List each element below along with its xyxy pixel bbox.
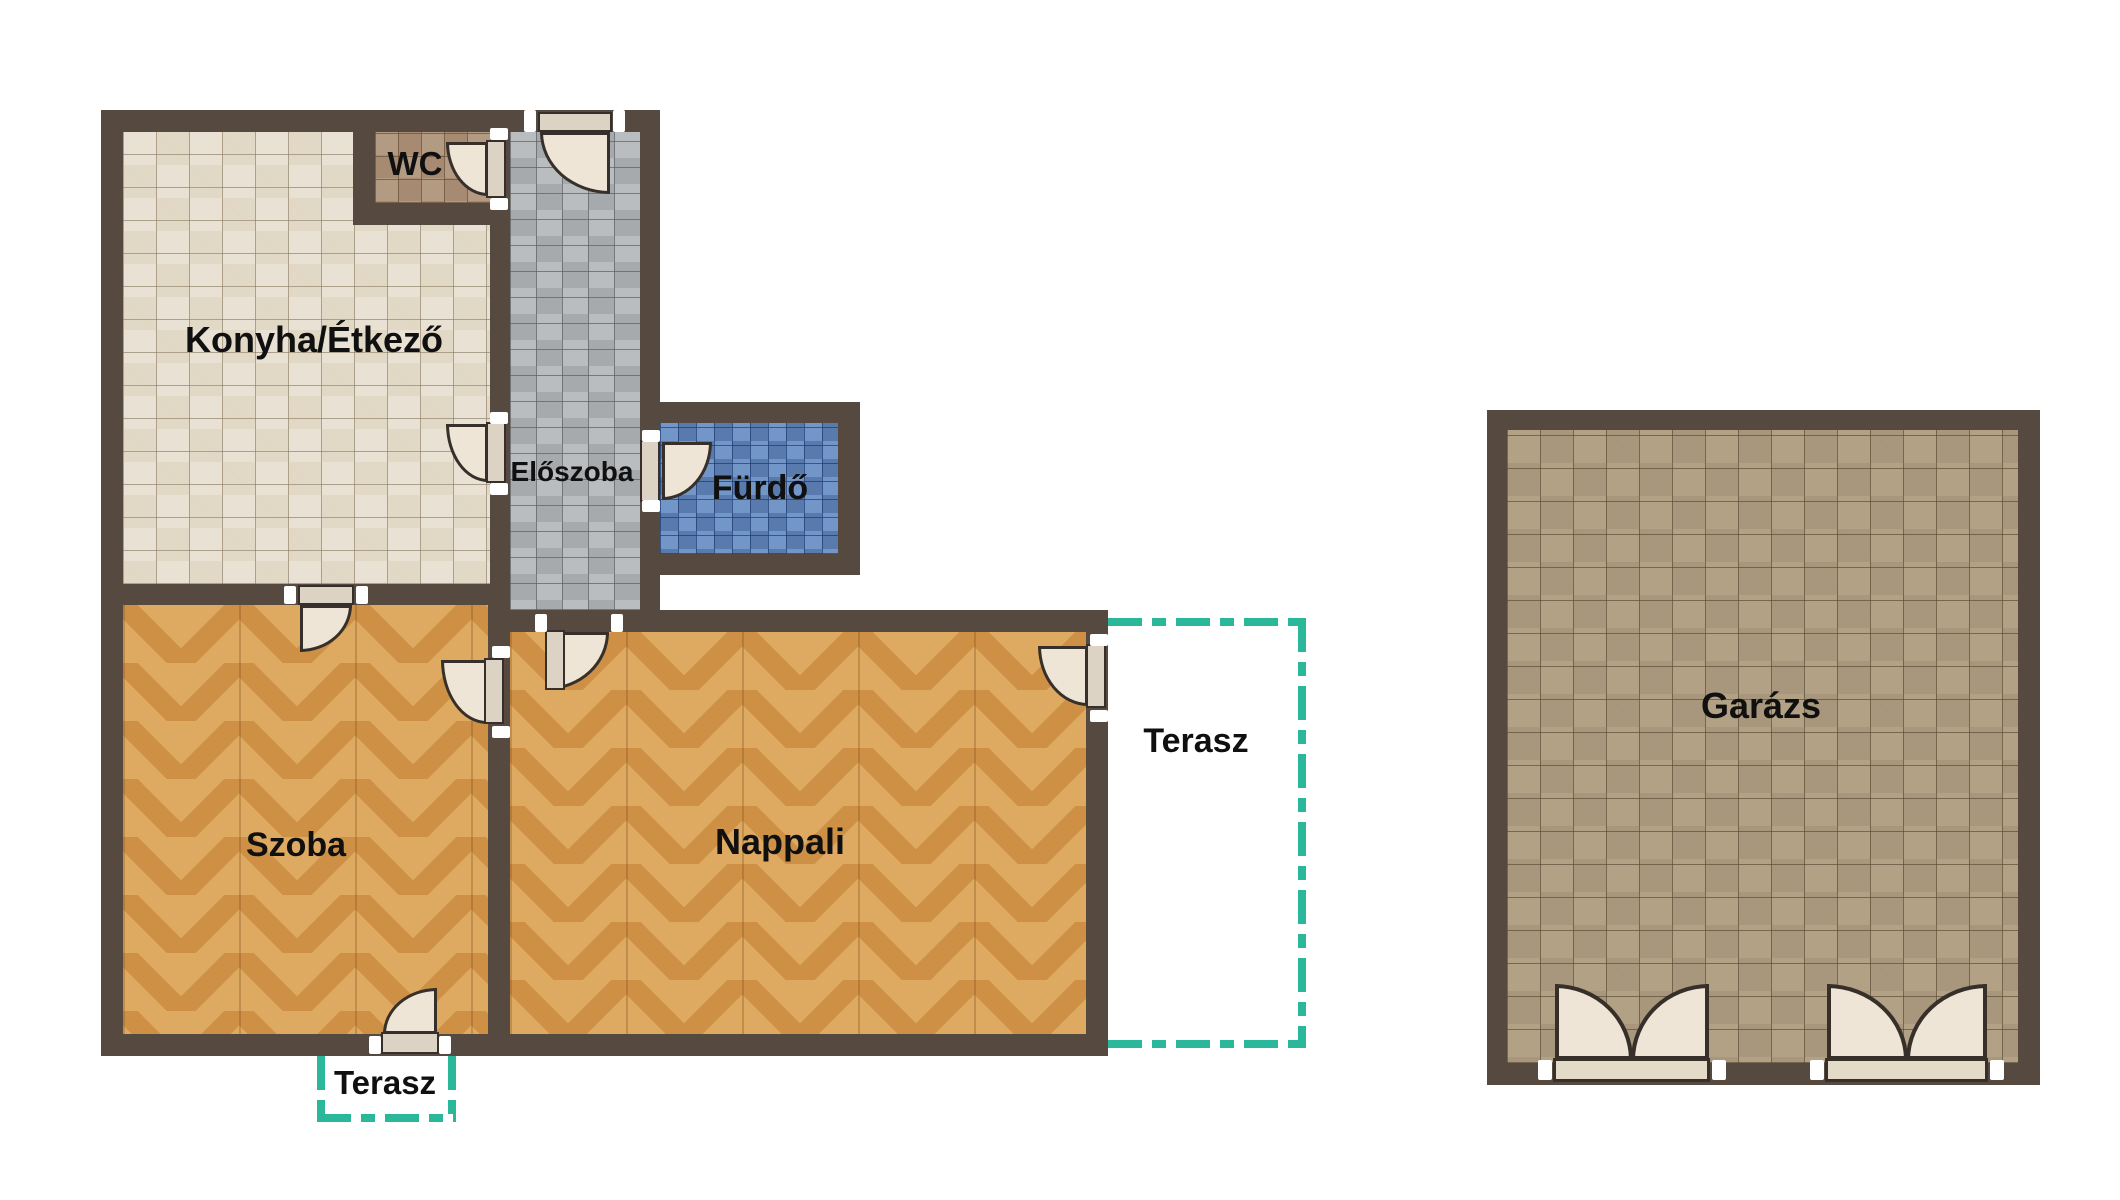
jamb-bracket <box>490 412 508 424</box>
jamb-bracket <box>284 586 296 604</box>
wc-door-leaf-icon <box>486 140 506 198</box>
jamb-bracket <box>535 614 547 632</box>
jamb-bracket <box>642 500 660 512</box>
wall-wc-bottom <box>353 203 510 225</box>
room-label-terasz-bottom: Terasz <box>285 1066 485 1099</box>
entrance-door-leaf-icon <box>538 112 612 132</box>
wall-left <box>101 110 123 1056</box>
jamb-bracket <box>356 586 368 604</box>
floor-plan-canvas: Konyha/Étkező WC Előszoba Fürdő Szoba Na… <box>0 0 2120 1200</box>
jamb-bracket <box>1810 1060 1824 1080</box>
room-label-terasz-right: Terasz <box>1096 724 1296 758</box>
jamb-bracket <box>1712 1060 1726 1080</box>
jamb-bracket <box>524 110 536 132</box>
floor-garazs <box>1507 430 2018 1063</box>
terrace-right-outline-bottom <box>1108 1040 1306 1048</box>
jamb-bracket <box>492 646 510 658</box>
jamb-bracket <box>1090 634 1108 646</box>
jamb-bracket <box>611 614 623 632</box>
garage-door-right-sill <box>1825 1058 1988 1082</box>
jamb-bracket <box>490 198 508 210</box>
jamb-bracket <box>1990 1060 2004 1080</box>
room-label-konyha: Konyha/Étkező <box>124 322 504 358</box>
jamb-bracket <box>613 110 625 132</box>
floor-eloszoba <box>510 132 640 610</box>
floor-szoba <box>123 605 488 1035</box>
szoba-nappali-door-leaf-icon <box>484 658 504 724</box>
jamb-bracket <box>492 726 510 738</box>
furdo-door-leaf-icon <box>640 440 660 502</box>
szoba-konyha-door-leaf-icon <box>298 585 354 605</box>
wall-bottom <box>101 1034 1108 1056</box>
jamb-bracket <box>369 1036 381 1054</box>
terrace-door-leaf-icon <box>1086 644 1106 708</box>
wall-nappali-top <box>490 610 1108 632</box>
terrace-bottom-outline-bottom <box>317 1114 456 1122</box>
jamb-bracket <box>1538 1060 1552 1080</box>
jamb-bracket <box>642 430 660 442</box>
room-label-eloszoba: Előszoba <box>492 458 652 486</box>
room-label-nappali: Nappali <box>630 824 930 860</box>
jamb-bracket <box>490 483 508 495</box>
wall-corridor-right <box>640 132 660 612</box>
konyha-door-leaf-icon <box>486 422 506 483</box>
jamb-bracket <box>1090 710 1108 722</box>
wall-furdo-bottom <box>640 554 860 575</box>
terrace-right-outline-right <box>1298 618 1306 1048</box>
jamb-bracket <box>439 1036 451 1054</box>
garage-door-left-sill <box>1553 1058 1710 1082</box>
terrace-right-outline-top <box>1108 618 1306 626</box>
wall-furdo-top <box>640 402 860 423</box>
szoba-terrace-door-leaf-icon <box>381 1032 439 1054</box>
room-label-garazs: Garázs <box>1611 688 1911 724</box>
nappali-hall-door-leaf-icon <box>545 630 565 690</box>
room-label-szoba: Szoba <box>171 828 421 862</box>
jamb-bracket <box>490 128 508 140</box>
